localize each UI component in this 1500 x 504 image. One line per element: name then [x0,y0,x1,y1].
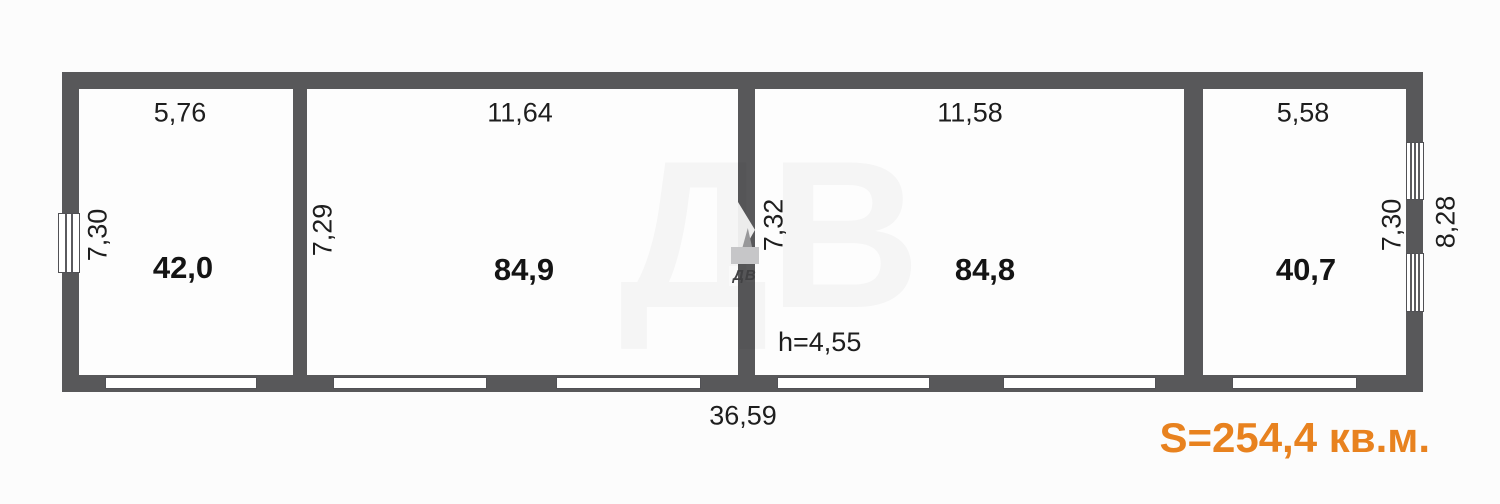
room-2 [307,89,738,375]
window-mullion [1414,254,1416,311]
area-label-room4: 40,7 [1276,252,1336,288]
door-opening [1232,377,1357,389]
window-mullion [1414,143,1416,199]
dim-label-room2-width: 11,64 [487,98,553,129]
door-opening [105,377,257,389]
door-opening [333,377,487,389]
door-opening [777,377,930,389]
window-mullion [1418,143,1420,199]
overall-width-label: 36,59 [709,401,777,432]
dim-label-room3-height: 7,32 [759,199,790,252]
dim-label-room2-height: 7,29 [308,204,339,257]
dim-label-room1-width: 5,76 [154,98,207,129]
watermark-logo [731,247,759,264]
total-area-label: S=254,4 кв.м. [1159,414,1430,462]
window-mullion [1410,254,1412,311]
door-opening [556,377,701,389]
window-mullion [1418,254,1420,311]
watermark-logo-text: ДВ [733,267,757,284]
window-symbol [58,213,80,273]
right-height-label: 8,28 [1431,196,1462,249]
area-label-room3: 84,8 [955,252,1015,288]
window-symbol [1406,142,1424,200]
area-label-room2: 84,9 [494,252,554,288]
ceiling-height-note: h=4,55 [778,327,861,358]
door-opening [1003,377,1156,389]
area-label-room1: 42,0 [153,250,213,286]
dim-label-room1-height: 7,30 [83,209,114,262]
dim-label-room3-width: 11,58 [937,98,1003,129]
floorplan: ДВ ДВ 5,76 7,30 42,0 11,64 7,29 84,9 11,… [0,0,1500,504]
window-symbol [1406,253,1424,312]
window-mullion [65,214,67,272]
window-mullion [1410,143,1412,199]
dim-label-room4-height: 7,30 [1377,199,1408,252]
window-mullion [71,214,73,272]
dim-label-room4-width: 5,58 [1277,98,1330,129]
